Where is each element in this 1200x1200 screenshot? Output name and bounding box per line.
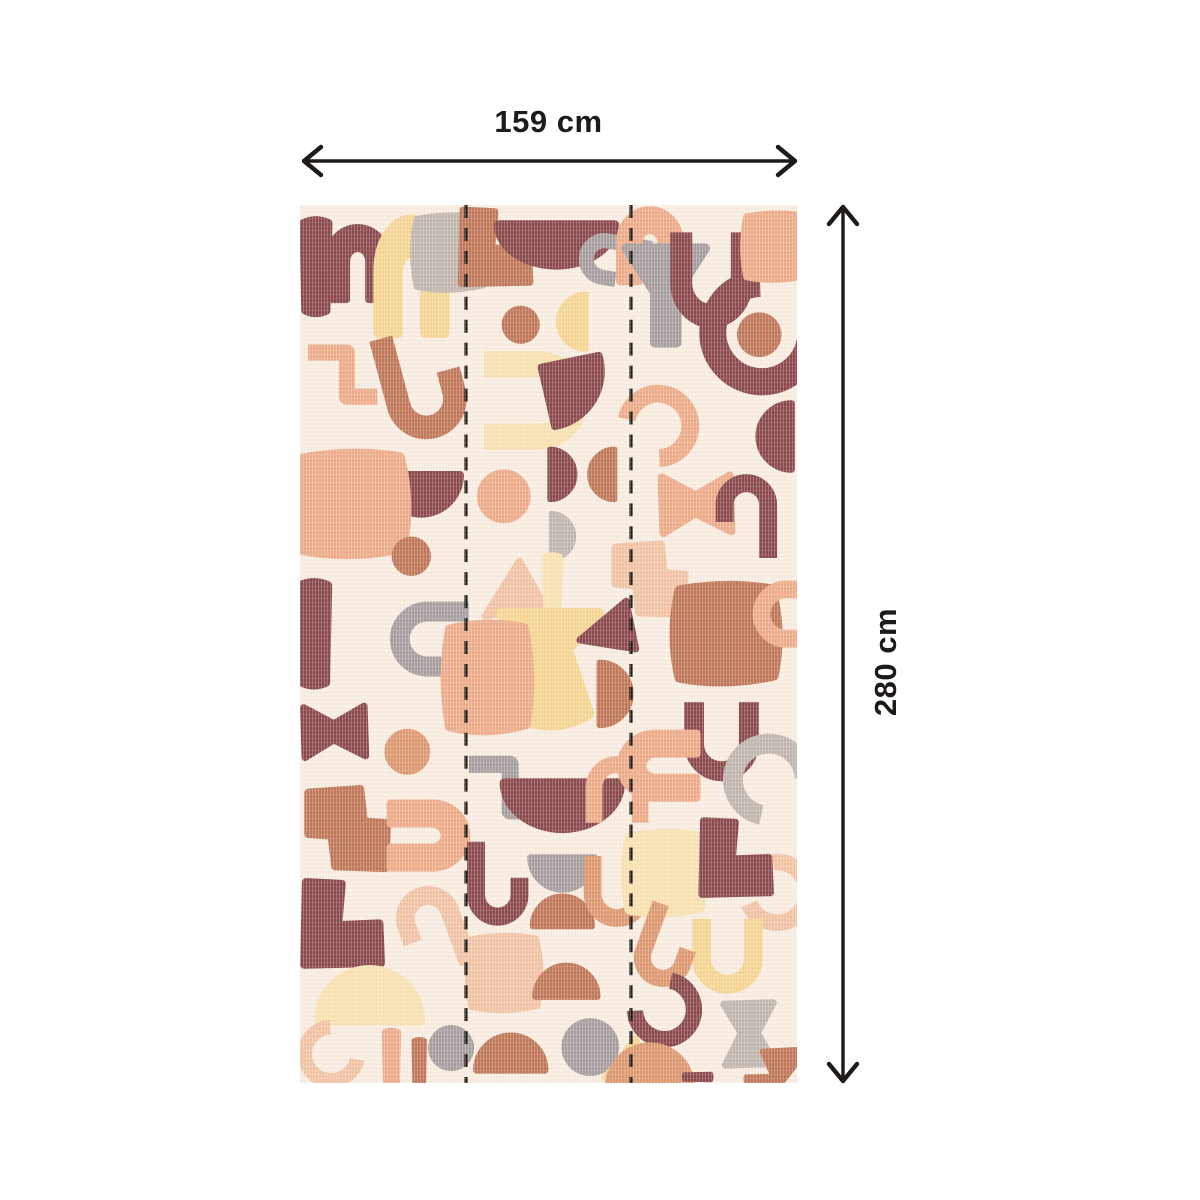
pattern-shape (384, 1030, 398, 1083)
pattern-shape (384, 729, 430, 775)
pattern-shape (445, 625, 530, 730)
wallpaper-panel (300, 205, 797, 1083)
pattern-shape (468, 936, 540, 1009)
height-dimension-label: 280 cm (865, 462, 907, 862)
pattern-shape (392, 536, 431, 576)
pattern-shape (737, 312, 782, 357)
pattern-shape (625, 833, 704, 914)
height-dimension-arrow (829, 207, 857, 1081)
pattern-shape (545, 555, 561, 613)
pattern-shape (300, 454, 406, 555)
pattern-shape (743, 214, 797, 280)
pattern-shape (477, 469, 531, 523)
width-dimension-label: 159 cm (300, 104, 797, 140)
pattern-shape (745, 1075, 774, 1083)
pattern-shape (300, 583, 327, 685)
pattern-shape (502, 306, 540, 344)
wallpaper-pattern (300, 205, 797, 1083)
pattern-shape (413, 1039, 425, 1083)
product-dimension-diagram: 159 cm 280 cm (0, 0, 1200, 1200)
pattern-shape (683, 1073, 712, 1081)
width-dimension-arrow (304, 147, 795, 175)
